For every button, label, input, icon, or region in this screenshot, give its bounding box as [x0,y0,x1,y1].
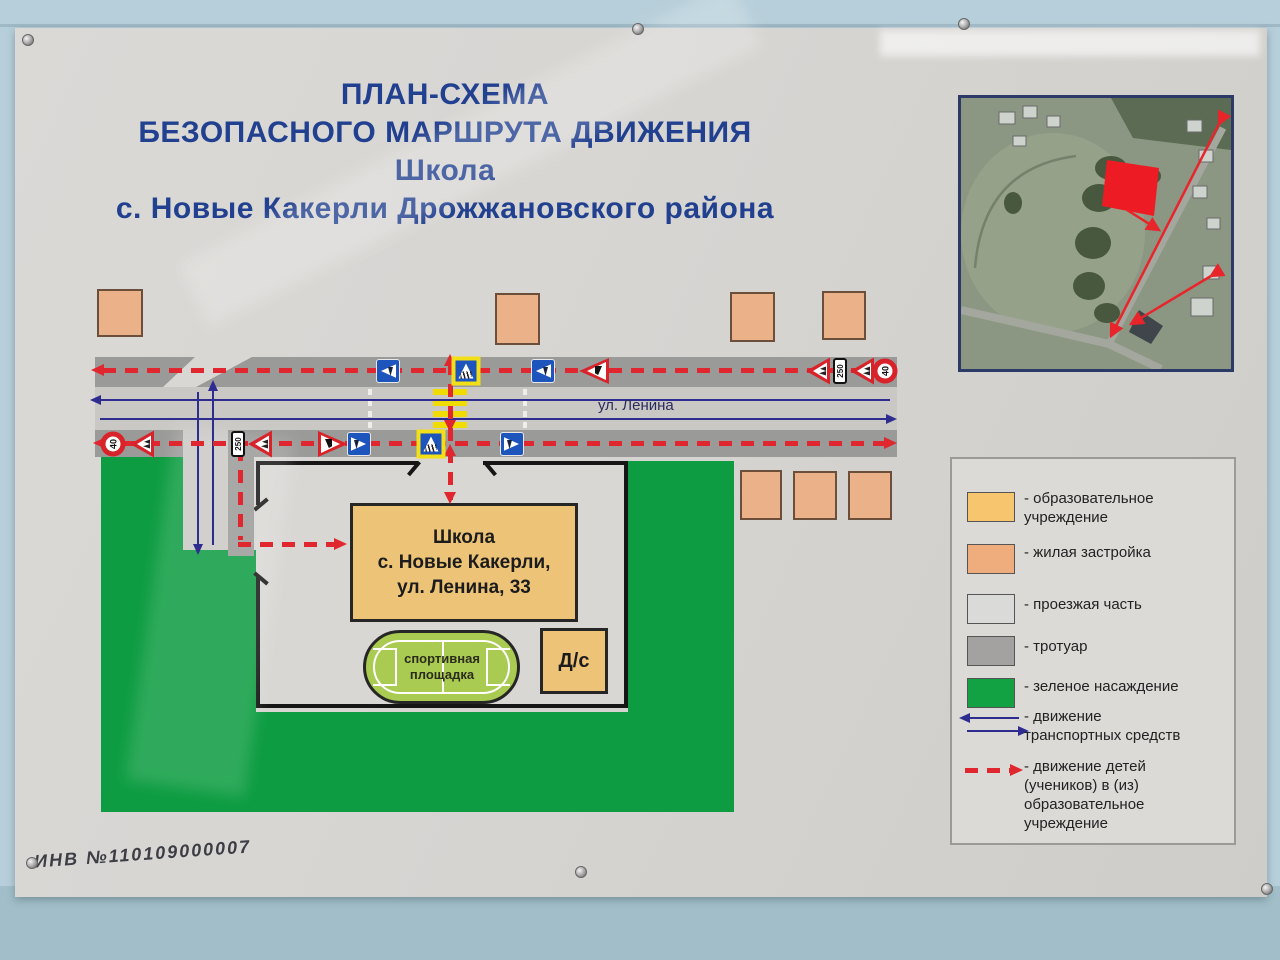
title-line-2: БЕЗОПАСНОГО МАРШРУТА ДВИЖЕНИЯ [85,114,805,152]
screw [26,857,38,869]
house [848,471,892,520]
crosswalk-yellow-sign [417,430,446,459]
screw [22,34,34,46]
territory-fence-right [624,461,628,708]
wall-lower-band [0,886,1280,960]
street-name-label: ул. Ленина [598,397,674,414]
pedestrian-glyph [421,434,442,455]
distance-250-plate: 250 [833,358,847,384]
green-area-right [628,461,734,812]
satellite-photo [958,95,1234,372]
pedestrian-crossing-left-sign [377,360,399,382]
distance-250-plate: 250 [231,431,245,457]
poster-title: ПЛАН-СХЕМА БЕЗОПАСНОГО МАРШРУТА ДВИЖЕНИЯ… [85,76,805,228]
house [495,293,540,345]
pedestrian-crossing-right-sign [348,433,370,455]
children-route-arrow [444,420,456,432]
kindergarten-building: Д/с [540,628,608,694]
house [97,289,143,337]
school-building: Школа с. Новые Какерли, ул. Ленина, 33 [350,503,578,622]
children-route-to-school [238,542,336,547]
house [793,471,837,520]
legend-vehicle-line [967,730,1022,732]
house [740,470,782,520]
territory-fence-top-right [483,461,628,465]
legend: - образовательное учреждение - жилая зас… [950,457,1236,845]
crosswalk-yellow-sign [452,357,481,386]
legend-swatch-education [967,492,1015,522]
title-line-4: с. Новые Какерли Дрожжановского района [85,190,805,228]
pedestrian-crossing-right-sign [501,433,523,455]
children-route-arrow [334,538,347,550]
side-street-lane-line [197,392,199,545]
legend-label: - движение детей (учеников) в (из) образ… [1024,757,1229,833]
legend-label: - жилая застройка [1024,543,1229,562]
vehicle-arrow-east [886,414,897,424]
legend-vehicle-line [967,717,1019,719]
children-route-bottom [103,441,885,446]
legend-label: - проезжая часть [1024,595,1229,614]
satellite-graphic [961,98,1231,369]
legend-label: - зеленое насаждение [1024,677,1229,696]
legend-vehicle-arrow-left [959,713,970,723]
territory-fence-left-lower [256,575,260,708]
children-route-arrow [884,437,897,449]
pedestrian-glyph [456,361,477,382]
legend-swatch-roadway [967,594,1015,624]
legend-children-arrow [1010,764,1023,776]
photo-of-safety-route-poster: ПЛАН-СХЕМА БЕЗОПАСНОГО МАРШРУТА ДВИЖЕНИЯ… [0,0,1280,960]
road-dash-marking [368,389,372,431]
children-route-side [238,448,243,540]
legend-swatch-sidewalk [967,636,1015,666]
speed-limit-40-sign: 40 [101,432,126,457]
pedestrian-crossing-left-sign [532,360,554,382]
children-route-arrow [91,364,104,376]
territory-fence-left-upper [256,461,260,505]
territory-fence-bottom [256,704,628,708]
house [730,292,775,342]
screw [958,18,970,30]
children-route-arrow [444,444,456,456]
vehicle-arrow-west [90,395,101,405]
legend-swatch-residential [967,544,1015,574]
speed-limit-40-sign: 40 [873,359,898,384]
screw [1261,883,1273,895]
sports-field-label: спортивная площадка [378,642,506,692]
children-route-arrow [444,492,456,504]
legend-children-dashes [965,768,1011,773]
children-route-top [103,368,891,373]
vehicle-lane-east-line [100,418,888,420]
side-street [183,387,228,550]
legend-label: - образовательное учреждение [1024,489,1229,527]
territory-fence-top-left [256,461,418,465]
side-street-arrow-up [208,380,218,391]
screw [632,23,644,35]
legend-label: - движение транспортных средств [1024,707,1229,745]
road-dash-marking [523,389,527,431]
title-line-3: Школа [85,152,805,190]
house [822,291,866,340]
legend-label: - тротуар [1024,637,1229,656]
vehicle-lane-west-line [100,399,890,401]
title-line-1: ПЛАН-СХЕМА [85,76,805,114]
screw [575,866,587,878]
school-location-highlight [1102,160,1159,216]
side-street-lane-line [212,391,214,545]
side-street-arrow-down [193,544,203,555]
legend-swatch-greenery [967,678,1015,708]
